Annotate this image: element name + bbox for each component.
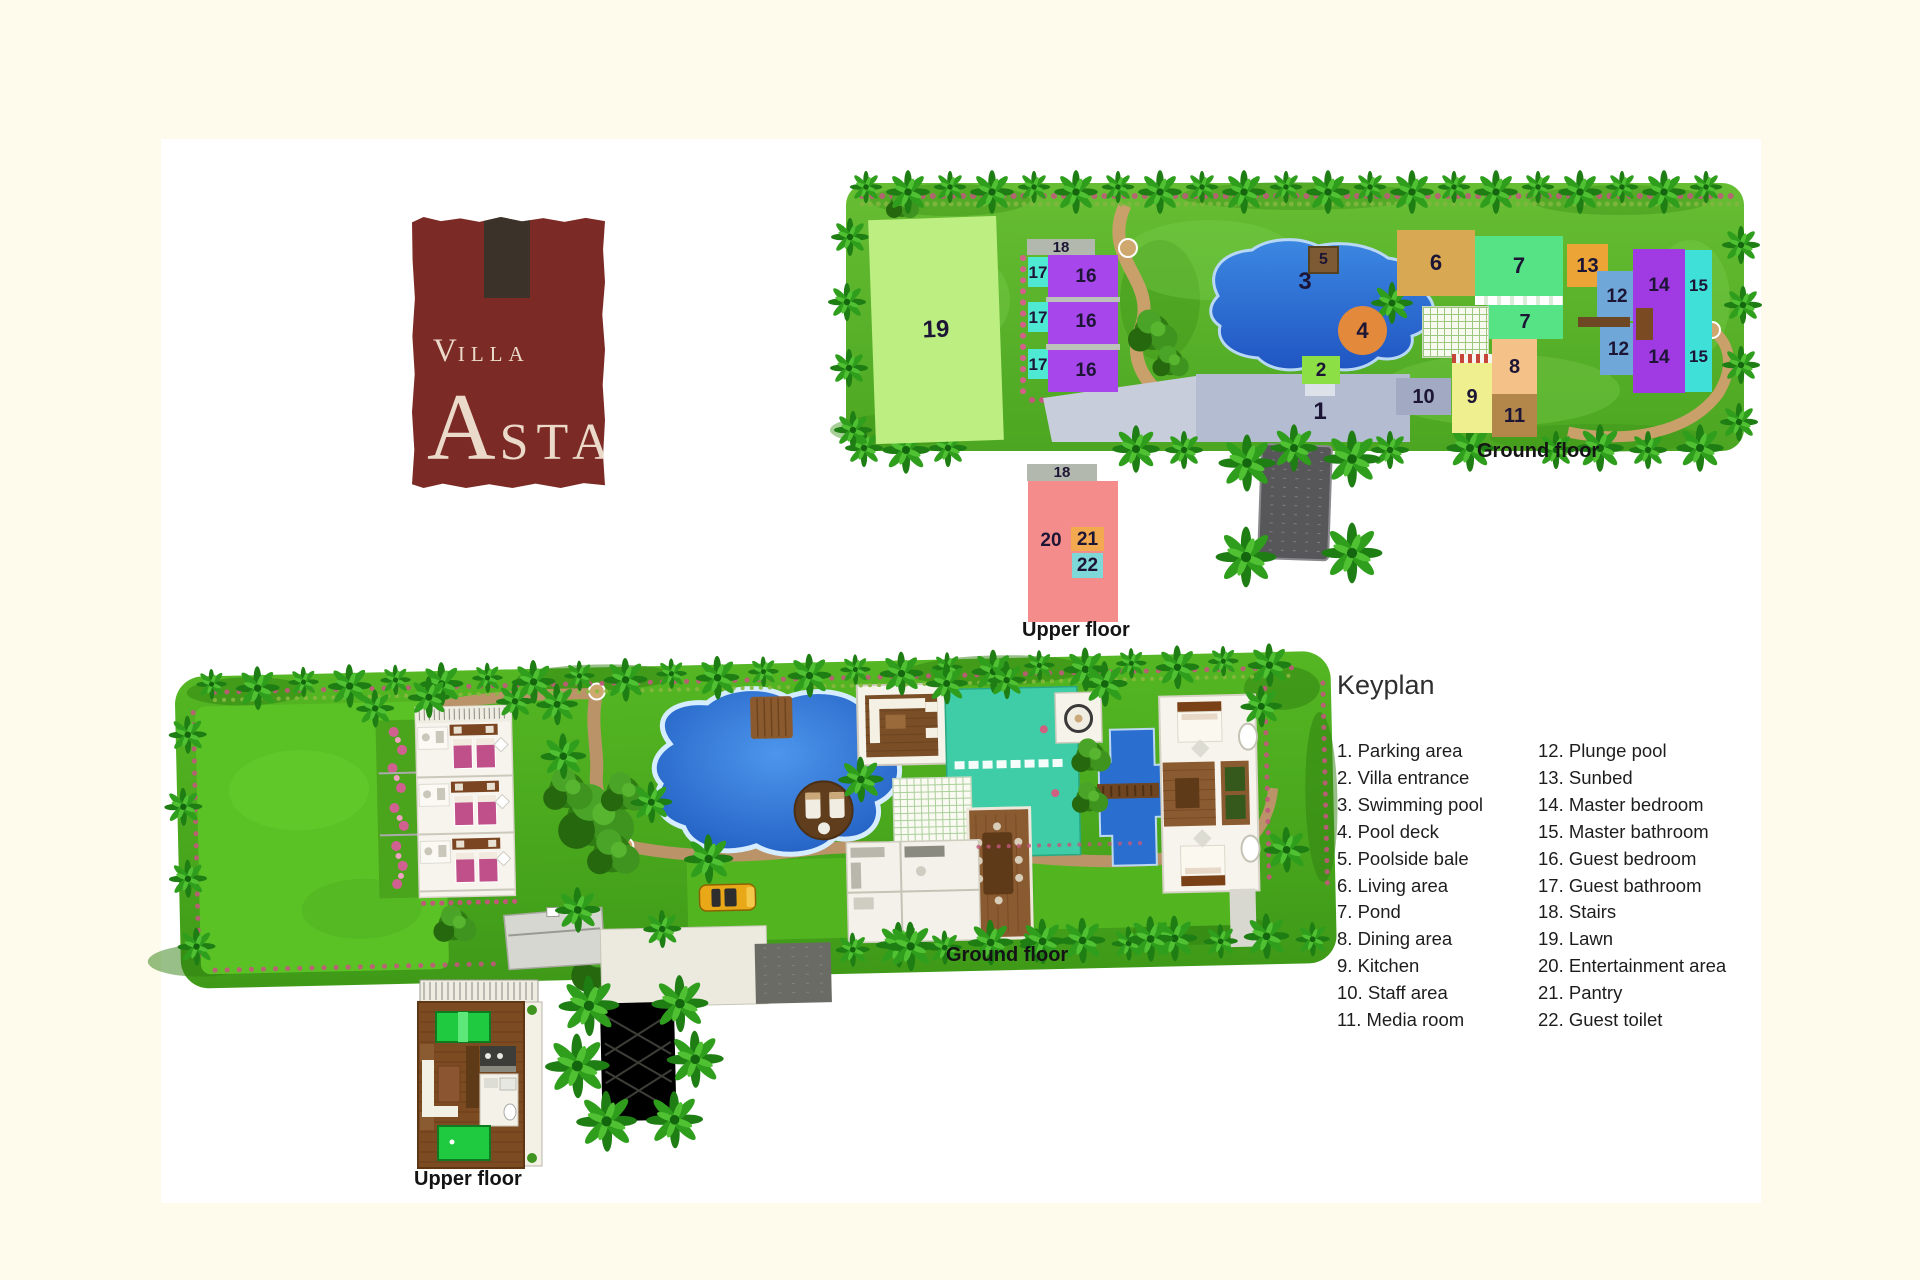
living-area-6: 6 <box>1397 230 1475 296</box>
stairs-18-ground: 18 <box>1027 239 1095 255</box>
legend-item-13: 13. Sunbed <box>1538 765 1726 792</box>
canvas: VILLA ASTA 19181717171616163542110677891… <box>0 0 1920 1280</box>
stairs-18-upper: 18 <box>1027 464 1097 481</box>
ground-floor-caption-bottom: Ground floor <box>946 944 1068 967</box>
pond-divider <box>1475 296 1563 305</box>
guest-bedroom-16-2: 16 <box>1056 303 1116 339</box>
legend-item-3: 3. Swimming pool <box>1337 792 1538 819</box>
legend-column-2: 12. Plunge pool13. Sunbed14. Master bedr… <box>1538 738 1726 1034</box>
legend-item-9: 9. Kitchen <box>1337 953 1538 980</box>
legend-item-7: 7. Pond <box>1337 899 1538 926</box>
legend-item-1: 1. Parking area <box>1337 738 1538 765</box>
guest-bedroom-16-1: 16 <box>1056 258 1116 294</box>
parking-area-label: 1 <box>1300 396 1340 428</box>
upper-floor-caption-top: Upper floor <box>1022 619 1130 642</box>
pond-bridge <box>1097 783 1159 799</box>
plunge-pool-12-lower: 12 <box>1600 323 1637 375</box>
legend-item-22: 22. Guest toilet <box>1538 1007 1726 1034</box>
pond-7-lower: 7 <box>1487 305 1563 339</box>
pool-deck-round <box>794 781 853 840</box>
legend-item-6: 6. Living area <box>1337 873 1538 900</box>
master-bathroom-15-upper: 15 <box>1685 250 1712 321</box>
stair-strip-1 <box>1046 297 1120 302</box>
stair-strip-2 <box>1046 344 1120 350</box>
logo-asta-initial: A <box>427 380 496 475</box>
legend-item-21: 21. Pantry <box>1538 980 1726 1007</box>
legend-item-10: 10. Staff area <box>1337 980 1538 1007</box>
legend-item-20: 20. Entertainment area <box>1538 953 1726 980</box>
legend-item-14: 14. Master bedroom <box>1538 792 1726 819</box>
pond-bale <box>1055 692 1102 743</box>
pantry-21: 21 <box>1071 527 1104 551</box>
guest-bathroom-17-1: 17 <box>1028 257 1048 287</box>
plunge-pool-12-upper: 12 <box>1597 271 1637 321</box>
guest-toilet-22: 22 <box>1072 553 1103 578</box>
grid-deck <box>893 777 972 843</box>
legend-item-16: 16. Guest bedroom <box>1538 846 1726 873</box>
poolside-bale-platform <box>750 696 793 739</box>
legend-item-17: 17. Guest bathroom <box>1538 873 1726 900</box>
entertainment-room <box>418 1002 524 1168</box>
legend-item-18: 18. Stairs <box>1538 899 1726 926</box>
cobble-entry-path <box>755 942 832 1004</box>
legend-title: Keyplan <box>1337 670 1726 701</box>
logo-block <box>484 217 530 298</box>
dining-area-8: 8 <box>1492 339 1537 394</box>
sunbed-deck-shape <box>1636 308 1653 340</box>
guest-bathroom-17-3: 17 <box>1028 349 1048 379</box>
logo-villa-initial: V <box>433 335 457 368</box>
pool-deck-4: 4 <box>1338 306 1387 355</box>
legend-item-2: 2. Villa entrance <box>1337 765 1538 792</box>
legend-column-1: 1. Parking area2. Villa entrance3. Swimm… <box>1337 738 1538 1034</box>
guest-bathroom-17-2: 17 <box>1028 302 1048 332</box>
ground-floor-caption-top: Ground floor <box>1477 440 1599 463</box>
villa-entrance-2: 2 <box>1302 356 1340 384</box>
legend-item-5: 5. Poolside bale <box>1337 846 1538 873</box>
media-room-11: 11 <box>1492 394 1537 437</box>
lower-plan-art <box>141 633 1345 1175</box>
bridge-strip <box>1578 317 1630 327</box>
logo-word-villa: VILLA <box>433 335 530 368</box>
guest-bedroom-16-3: 16 <box>1056 350 1116 390</box>
upper-floor-caption-bottom: Upper floor <box>414 1168 522 1191</box>
pond-7-upper: 7 <box>1475 236 1563 296</box>
entertainment-area-20-label: 20 <box>1034 528 1068 552</box>
checker-strip <box>1452 354 1492 363</box>
lawn-19: 19 <box>868 216 1004 444</box>
villa-asta-logo: VILLA ASTA <box>412 217 605 488</box>
legend-item-4: 4. Pool deck <box>1337 819 1538 846</box>
staff-area-10: 10 <box>1396 378 1451 415</box>
logo-word-asta: ASTA <box>427 380 618 475</box>
legend-item-19: 19. Lawn <box>1538 926 1726 953</box>
site-plan-artwork <box>0 0 1920 1280</box>
upper-floor-detail-art <box>418 980 542 1168</box>
keyplan-legend: Keyplan 1. Parking area2. Villa entrance… <box>1337 670 1726 1034</box>
pool-deck-grid <box>1422 306 1489 358</box>
car <box>699 884 756 911</box>
poolside-bale-5: 5 <box>1308 246 1339 274</box>
kitchen-9: 9 <box>1452 361 1492 433</box>
master-bedroom-building <box>1159 694 1260 892</box>
legend-item-8: 8. Dining area <box>1337 926 1538 953</box>
legend-item-12: 12. Plunge pool <box>1538 738 1726 765</box>
legend-item-15: 15. Master bathroom <box>1538 819 1726 846</box>
master-bathroom-15-lower: 15 <box>1685 321 1712 392</box>
legend-item-11: 11. Media room <box>1337 1007 1538 1034</box>
